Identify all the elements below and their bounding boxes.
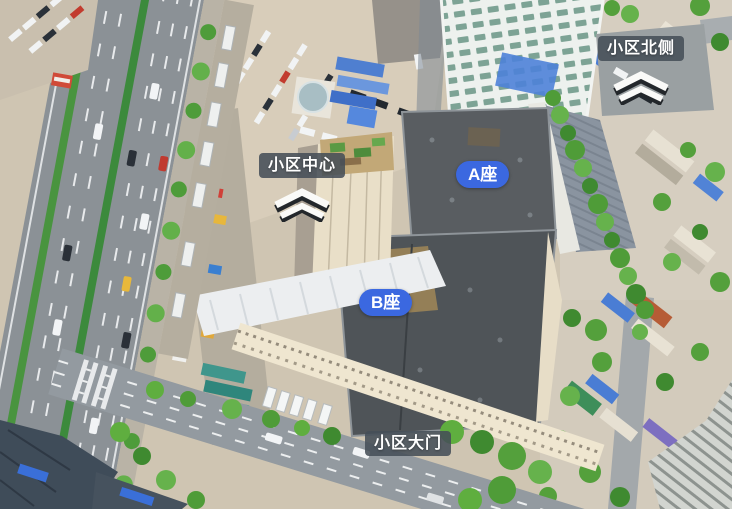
marker-label-center[interactable]: 小区中心 [259,153,345,178]
screenshot-root: 小区北侧 小区中心 A座 B座 小区大门 [0,0,732,509]
marker-label-gate[interactable]: 小区大门 [365,431,451,456]
double-chevron-up-icon [611,71,671,105]
marker-building-b[interactable]: B座 [359,289,412,316]
marker-label-north[interactable]: 小区北侧 [598,36,684,61]
marker-building-a[interactable]: A座 [456,161,509,188]
double-chevron-up-icon [272,188,332,222]
